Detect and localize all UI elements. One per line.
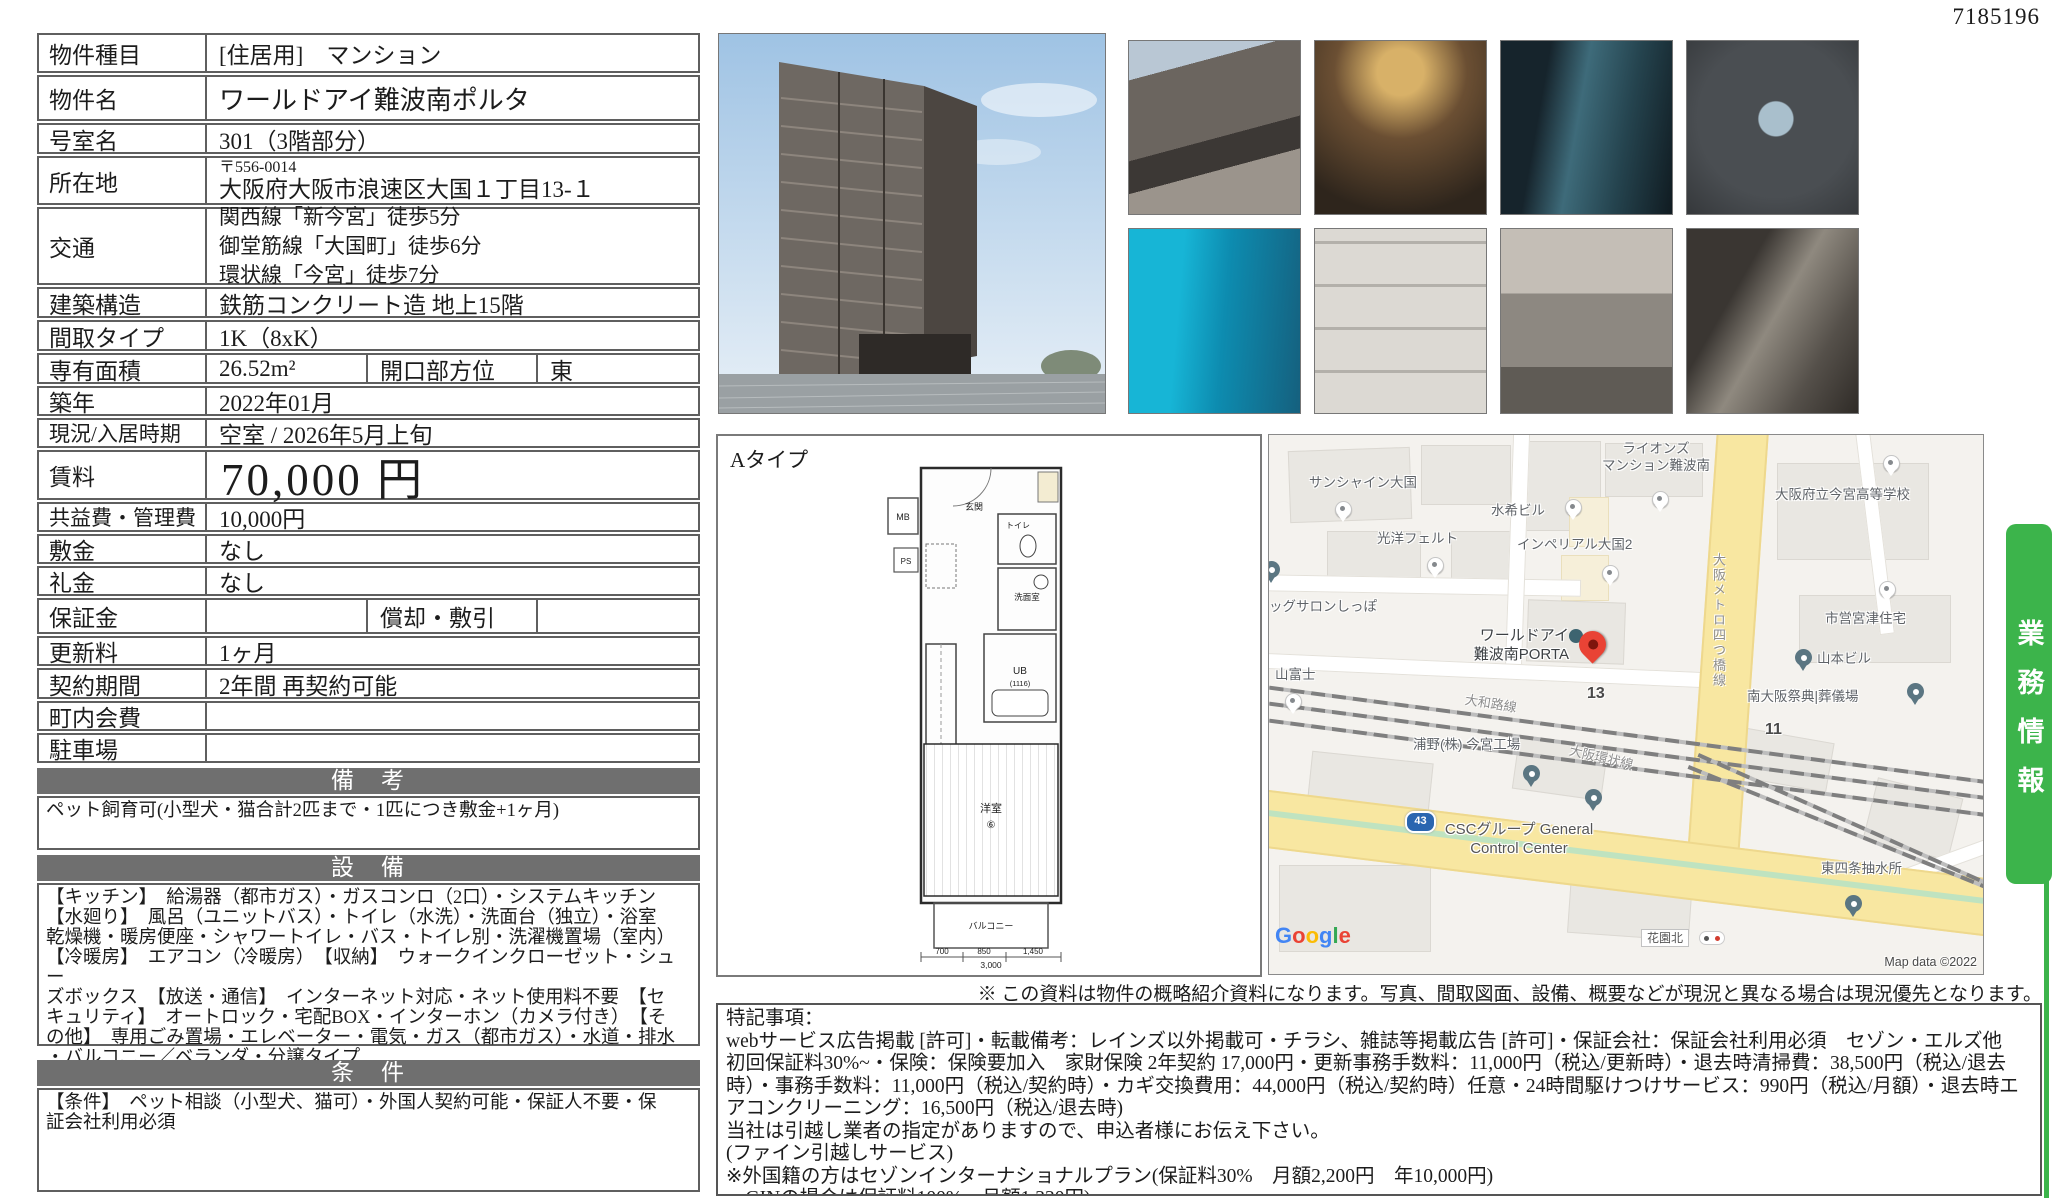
map-pin-icon bbox=[1602, 565, 1619, 582]
google-letter: e bbox=[1339, 923, 1351, 948]
bus-route-icon bbox=[1699, 931, 1725, 945]
fp-ps-label: PS bbox=[901, 557, 912, 566]
map-pin-icon bbox=[1652, 491, 1669, 508]
map-pin-icon bbox=[1879, 581, 1896, 598]
row-value: 〒556-0014 大阪府大阪市浪速区大国１丁目13-１ bbox=[207, 158, 698, 203]
table-row: 交通 関西線「新今宮」徒歩5分 御堂筋線「大国町」徒歩6分 環状線「今宮」徒歩7… bbox=[37, 207, 700, 285]
location-map: 大和路線 大阪環状線 大阪メトロ四つ橋線 13 11 サンシャイン大国 光洋フェ… bbox=[1268, 434, 1984, 975]
access-line: 関西線「新今宮」徒歩5分 bbox=[219, 203, 482, 232]
thumbnail-mailboxes bbox=[1314, 228, 1487, 414]
row-label: 現況/入居時期 bbox=[39, 420, 207, 446]
fp-room-number: ⑥ bbox=[987, 820, 996, 831]
google-letter: o bbox=[1306, 923, 1319, 948]
property-sheet: 7185196 物件種目 [住居用] マンション 物件名 ワールドアイ難波南ポル… bbox=[0, 0, 2056, 1198]
table-row: 物件名 ワールドアイ難波南ポルタ bbox=[37, 75, 700, 121]
thumbnail-bike-racks bbox=[1686, 228, 1859, 414]
access-line: 御堂筋線「大国町」徒歩6分 bbox=[219, 232, 482, 261]
property-spec-table: 物件種目 [住居用] マンション 物件名 ワールドアイ難波南ポルタ 号室名 30… bbox=[37, 33, 700, 1194]
subject-block-number: 13 bbox=[1587, 685, 1605, 703]
disclaimer-note: ※ この資料は物件の概略紹介資料になります。写真、間取図面、設備、概要などが現況… bbox=[716, 979, 2042, 1006]
map-place-label: 南大阪祭典|葬儀場 bbox=[1747, 689, 1859, 706]
row-label: 敷金 bbox=[39, 536, 207, 562]
fp-dim-1: 700 bbox=[935, 947, 949, 956]
photo-thumbnails-row2 bbox=[1128, 228, 1859, 414]
row-label: 更新料 bbox=[39, 638, 207, 664]
building-photo-art bbox=[719, 34, 1105, 413]
banner-edge-line bbox=[2044, 878, 2049, 1198]
row-label: 号室名 bbox=[39, 125, 207, 152]
row-label: 物件種目 bbox=[39, 35, 207, 71]
table-row: 築年 2022年01月 bbox=[37, 386, 700, 416]
special-notes-box: 特記事項： webサービス広告掲載 [許可]・転載備考：レインズ以外掲載可・チラ… bbox=[716, 1003, 2042, 1196]
row-sub-value: 東 bbox=[538, 355, 698, 382]
map-place-label: 山富士 bbox=[1275, 667, 1316, 684]
map-place-label: CSCグループ General Control Center bbox=[1419, 821, 1619, 859]
table-row: 駐車場 bbox=[37, 733, 700, 763]
map-pin-icon bbox=[1845, 895, 1862, 912]
map-pin-icon bbox=[1585, 789, 1602, 806]
row-label: 交通 bbox=[39, 209, 207, 283]
map-street bbox=[1268, 574, 1581, 597]
table-row: 共益費・管理費 10,000円 bbox=[37, 502, 700, 532]
section-text-equipment: 【キッチン】 給湯器（都市ガス）・ガスコンロ（2口）・システムキッチン 【水廻り… bbox=[37, 883, 700, 1046]
fp-ub-size: (1116) bbox=[1010, 679, 1031, 688]
table-row: 物件種目 [住居用] マンション bbox=[37, 33, 700, 73]
map-place-label: ライオンズ マンション難波南 bbox=[1591, 441, 1721, 475]
row-sub-label: 償却・敷引 bbox=[366, 600, 538, 632]
map-place-label: サンシャイン大国 bbox=[1309, 475, 1417, 492]
section-text-remarks: ペット飼育可(小型犬・猫合計2匹まで・1匹につき敷金+1ヶ月) bbox=[37, 796, 700, 850]
business-info-banner: 業務情報 bbox=[2006, 524, 2052, 884]
fp-dim-2: 850 bbox=[977, 947, 991, 956]
thumbnail-intercom-panel bbox=[1686, 40, 1859, 215]
row-value bbox=[207, 703, 698, 729]
row-label: 礼金 bbox=[39, 568, 207, 594]
row-value: 2022年01月 bbox=[207, 388, 698, 414]
map-place-label: 浦野(株) 今宮工場 bbox=[1413, 737, 1520, 754]
table-row: 間取タイプ 1K（8xK） bbox=[37, 320, 700, 351]
floorplan-drawing: MB PS 玄関 トイレ 洗面室 UB (1116) 洋室 ⑥ バルコニー bbox=[886, 448, 1096, 970]
map-pin-icon bbox=[1335, 501, 1352, 518]
building-exterior-photo bbox=[718, 33, 1106, 414]
google-letter: o bbox=[1292, 923, 1305, 948]
row-label: 間取タイプ bbox=[39, 322, 207, 349]
map-pin-icon bbox=[1795, 649, 1812, 666]
row-value: 鉄筋コンクリート造 地上15階 bbox=[207, 289, 698, 316]
row-label: 専有面積 bbox=[39, 355, 207, 382]
thumbnail-elevator-hall bbox=[1128, 228, 1301, 414]
row-label: 保証金 bbox=[39, 600, 207, 632]
google-letter: G bbox=[1275, 923, 1292, 948]
map-block bbox=[1421, 445, 1511, 505]
row-sub-value bbox=[538, 600, 698, 632]
row-value: 301（3階部分） bbox=[207, 125, 698, 152]
map-place-label: ッグサロンしっぽ bbox=[1269, 599, 1377, 616]
row-value: 10,000円 bbox=[207, 504, 698, 530]
map-pin-icon bbox=[1427, 557, 1444, 574]
route-43-shield: 43 bbox=[1405, 811, 1436, 833]
thumbnail-lobby-hallway bbox=[1500, 40, 1673, 215]
fp-washroom-label: 洗面室 bbox=[1014, 592, 1040, 602]
table-row: 礼金 なし bbox=[37, 566, 700, 596]
map-place-label: 水希ビル bbox=[1491, 503, 1545, 520]
row-label: 契約期間 bbox=[39, 670, 207, 697]
fp-dim-3: 1,450 bbox=[1023, 947, 1044, 956]
section-header-equipment: 設 備 bbox=[37, 855, 700, 881]
row-value bbox=[207, 735, 698, 761]
map-block-number: 11 bbox=[1765, 721, 1782, 739]
row-label: 町内会費 bbox=[39, 703, 207, 729]
row-value: 1ヶ月 bbox=[207, 638, 698, 664]
fp-balcony-label: バルコニー bbox=[969, 921, 1014, 931]
table-row: 契約期間 2年間 再契約可能 bbox=[37, 668, 700, 699]
row-label: 所在地 bbox=[39, 158, 207, 203]
row-value: 1K（8xK） bbox=[207, 322, 698, 349]
document-number: 7185196 bbox=[1953, 4, 2041, 30]
map-place-label: 光洋フェルト bbox=[1377, 531, 1458, 548]
table-row: 保証金 償却・敷引 bbox=[37, 598, 700, 634]
rent-value: 70,000 円 bbox=[207, 452, 698, 498]
row-label: 共益費・管理費 bbox=[39, 504, 207, 530]
row-value: [住居用] マンション bbox=[207, 35, 698, 71]
google-letter: g bbox=[1319, 923, 1332, 948]
fp-ub-label: UB bbox=[1013, 666, 1027, 677]
table-row: 賃料 70,000 円 bbox=[37, 450, 700, 500]
table-row: 専有面積 26.52m² 開口部方位 東 bbox=[37, 353, 700, 384]
thumbnail-entrance-lobby bbox=[1314, 40, 1487, 215]
subject-property-label: ワールドアイ 難波南PORTA bbox=[1439, 627, 1569, 665]
row-value: 26.52m² bbox=[207, 355, 366, 382]
map-pin-icon bbox=[1285, 693, 1302, 710]
photo-thumbnails-row1 bbox=[1128, 40, 1859, 215]
row-value: 関西線「新今宮」徒歩5分 御堂筋線「大国町」徒歩6分 環状線「今宮」徒歩7分 bbox=[207, 209, 698, 283]
postal-code: 〒556-0014 bbox=[219, 159, 595, 177]
row-value: ワールドアイ難波南ポルタ bbox=[207, 77, 698, 119]
map-place-label: 東四条抽水所 bbox=[1821, 861, 1902, 878]
table-row: 号室名 301（3階部分） bbox=[37, 123, 700, 154]
map-place-label: インペリアル大国2 bbox=[1517, 537, 1632, 554]
section-header-remarks: 備 考 bbox=[37, 768, 700, 794]
google-logo: Google bbox=[1275, 923, 1351, 949]
floorplan-type-label: Aタイプ bbox=[730, 444, 808, 474]
map-pin-icon bbox=[1907, 683, 1924, 700]
row-value: 2年間 再契約可能 bbox=[207, 670, 698, 697]
row-value: なし bbox=[207, 536, 698, 562]
fp-mb-label: MB bbox=[896, 512, 910, 522]
map-block bbox=[1777, 463, 1929, 560]
table-row: 町内会費 bbox=[37, 701, 700, 731]
fp-room-label: 洋室 bbox=[980, 801, 1002, 815]
table-row: 更新料 1ヶ月 bbox=[37, 636, 700, 666]
row-label: 築年 bbox=[39, 388, 207, 414]
bus-stop-label: 花園北 bbox=[1641, 929, 1689, 947]
row-value bbox=[207, 600, 366, 632]
row-label: 建築構造 bbox=[39, 289, 207, 316]
table-row: 建築構造 鉄筋コンクリート造 地上15階 bbox=[37, 287, 700, 318]
rail-label-metro: 大阪メトロ四つ橋線 bbox=[1709, 553, 1728, 688]
row-label: 駐車場 bbox=[39, 735, 207, 761]
row-label: 賃料 bbox=[39, 452, 207, 498]
map-pin-icon bbox=[1883, 455, 1900, 472]
fp-dim-total: 3,000 bbox=[980, 960, 1002, 970]
thumbnail-entrance-approach bbox=[1128, 40, 1301, 215]
fp-toilet-label: トイレ bbox=[1006, 521, 1030, 530]
row-label: 物件名 bbox=[39, 77, 207, 119]
map-pin-icon bbox=[1523, 765, 1540, 782]
address: 大阪府大阪市浪速区大国１丁目13-１ bbox=[219, 177, 595, 202]
map-place-label: 市営宮津住宅 bbox=[1825, 611, 1906, 628]
section-text-conditions: 【条件】 ペット相談（小型犬、猫可）・外国人契約可能・保証人不要・保 証会社利用… bbox=[37, 1088, 700, 1192]
table-row: 敷金 なし bbox=[37, 534, 700, 564]
map-attribution: Map data ©2022 bbox=[1884, 955, 1977, 969]
row-value: なし bbox=[207, 568, 698, 594]
floorplan-panel: Aタイプ MB PS 玄関 トイレ 洗面室 UB bbox=[716, 434, 1262, 977]
row-sub-label: 開口部方位 bbox=[366, 355, 538, 382]
table-row: 所在地 〒556-0014 大阪府大阪市浪速区大国１丁目13-１ bbox=[37, 156, 700, 205]
map-place-label: 大阪府立今宮高等学校 bbox=[1775, 487, 1910, 504]
map-pin-icon bbox=[1565, 499, 1582, 516]
section-header-conditions: 条 件 bbox=[37, 1060, 700, 1086]
fp-entrance-label: 玄関 bbox=[965, 501, 983, 512]
map-place-label: 山本ビル bbox=[1817, 651, 1871, 668]
thumbnail-bicycle-parking bbox=[1500, 228, 1673, 414]
